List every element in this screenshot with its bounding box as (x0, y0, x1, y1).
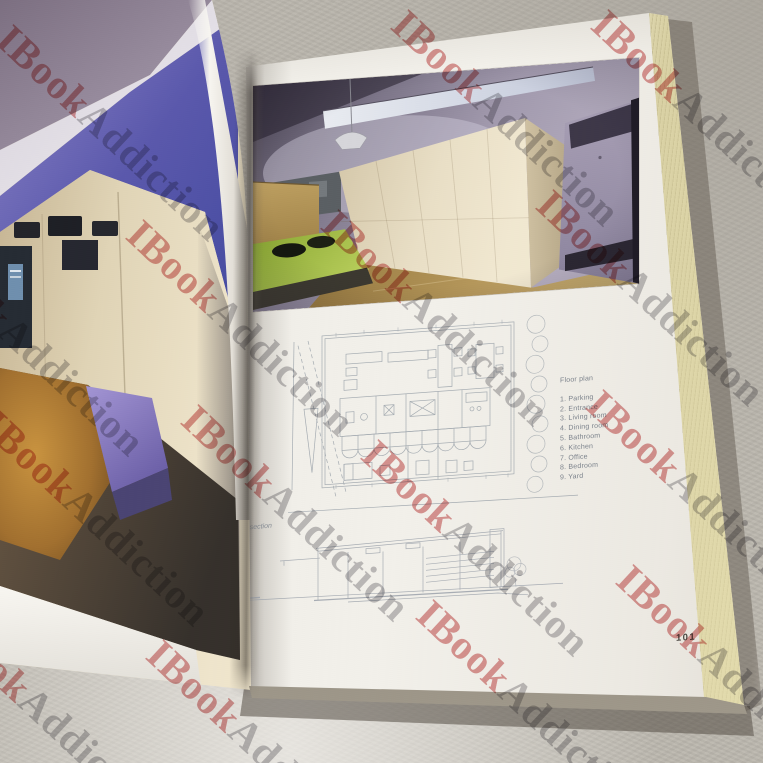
left-photo-dark-frame (62, 240, 98, 270)
gutter-crease (229, 48, 265, 698)
floor-plan-drawing (288, 301, 580, 524)
page-number: 101 (676, 631, 696, 643)
interior-photo (253, 58, 639, 312)
floor-plan-legend: Floor plan 1. Parking 2. Entrance 3. Liv… (560, 370, 650, 484)
photo-of-open-book: Floor plan 1. Parking 2. Entrance 3. Liv… (0, 0, 763, 763)
left-photo-wall-panel (0, 246, 32, 348)
section-tree (505, 556, 526, 588)
